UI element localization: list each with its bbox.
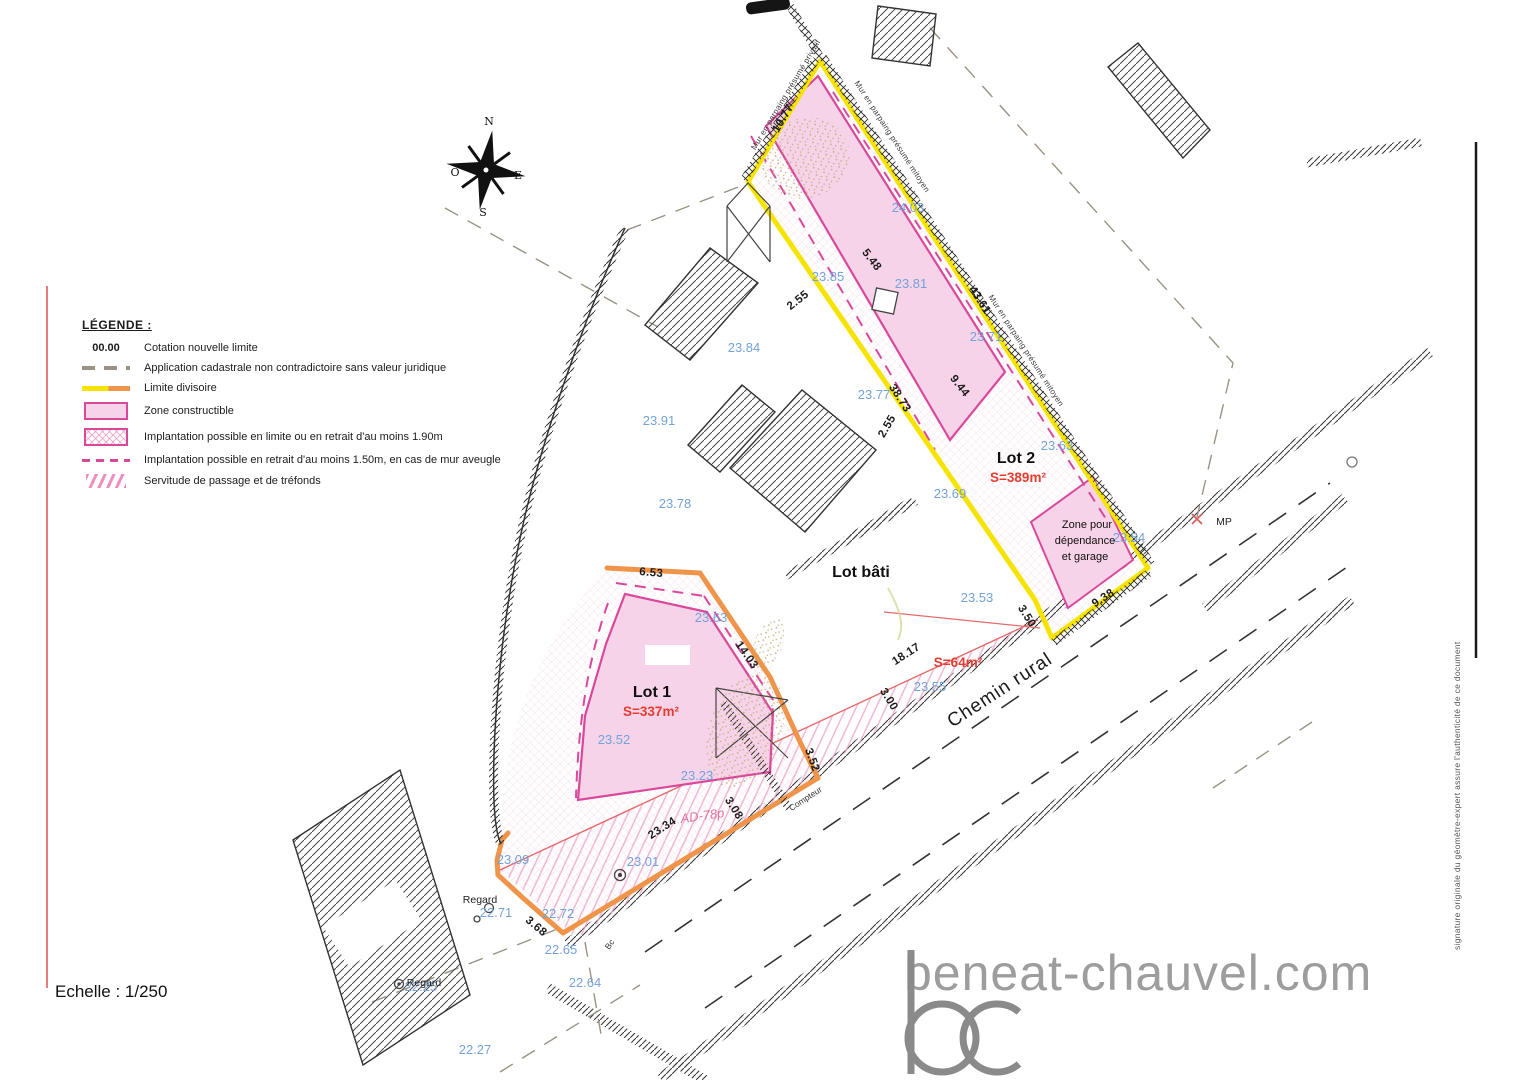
legend-row-servitude: Servitude de passage et de tréfonds [82, 474, 502, 488]
plan-label-mp: MP [1216, 516, 1232, 528]
plan-label-6-53: 6.53 [639, 566, 664, 580]
legend-row-limite: Limite divisoire [82, 382, 502, 394]
plan-svg: N E O S 10.7743.6138.739.445.482.552.556… [0, 0, 1528, 1080]
pink-dashed-line-icon [82, 459, 130, 462]
legend-row-cadastrale: Application cadastrale non contradictoir… [82, 362, 502, 374]
plan-label-22-64: 22.64 [569, 975, 602, 990]
plan-label-lot-b-ti: Lot bâti [832, 564, 890, 581]
legend-row-implantation-retrait: Implantation possible en retrait d'au mo… [82, 454, 502, 466]
plan-label-23-52: 23.52 [598, 732, 631, 747]
plan-label-23-77: 23.77 [858, 387, 891, 402]
plan-label-22-27: 22.27 [459, 1042, 492, 1057]
legend-label: Zone constructible [144, 405, 234, 417]
legend: LÉGENDE : 00.00 Cotation nouvelle limite… [82, 318, 502, 496]
plan-label-23-63: 23.63 [695, 610, 728, 625]
plan-label-2-55: 2.55 [785, 288, 811, 312]
plan-label-23-09: 23.09 [497, 852, 530, 867]
legend-row-implantation-limite: Implantation possible en limite ou en re… [82, 428, 502, 446]
plan-label-s-64m-: S=64m² [934, 655, 983, 670]
pink-crosshatch-icon [84, 428, 128, 446]
pink-rect-icon [84, 402, 128, 420]
compass-south-label: S [479, 206, 487, 219]
pink-hatch-icon [86, 474, 126, 488]
plan-label-2-55: 2.55 [876, 413, 898, 440]
legend-label: Cotation nouvelle limite [144, 342, 258, 354]
plan-label-d-pendance: dépendance [1055, 535, 1116, 547]
building-top-right [1108, 43, 1210, 158]
plan-label-regard: Regard [407, 977, 442, 989]
plan-label-22-71: 22.71 [480, 905, 513, 920]
plan-label-23-78: 23.78 [659, 496, 692, 511]
dashed-gray-line-icon [82, 366, 130, 370]
scale-label: Echelle : 1/250 [55, 982, 167, 1002]
plan-label-bc: Bc [603, 937, 617, 951]
legend-title: LÉGENDE : [82, 318, 502, 332]
legend-row-cotation: 00.00 Cotation nouvelle limite [82, 342, 502, 354]
plan-label-23-53: 23.53 [961, 590, 994, 605]
blank-patch [645, 645, 690, 665]
legend-label: Servitude de passage et de tréfonds [144, 475, 321, 487]
legend-label: Limite divisoire [144, 382, 217, 394]
legend-label: Implantation possible en retrait d'au mo… [144, 454, 501, 466]
plan-label-23-01: 23.01 [627, 854, 660, 869]
bc-logo-monogram [898, 948, 1048, 1076]
plan-label-23-54: 23.54 [1113, 530, 1146, 545]
survey-plan-page: N E O S 10.7743.6138.739.445.482.552.556… [0, 0, 1528, 1080]
plan-label-24-03: 24.03 [892, 200, 925, 215]
vegetation-mark [888, 588, 901, 640]
legend-row-zone: Zone constructible [82, 402, 502, 420]
plan-label-23-55: 23.55 [914, 679, 947, 694]
plan-label-lot-1: Lot 1 [633, 684, 671, 701]
plan-label-23-23: 23.23 [681, 768, 714, 783]
building-top-middle [872, 6, 936, 66]
surveyor-logo: beneat-chauvel.com [898, 948, 1372, 1004]
plan-label-23-69: 23.69 [934, 486, 967, 501]
plan-label-zone-pour: Zone pour [1062, 519, 1112, 531]
legend-label: Implantation possible en limite ou en re… [144, 431, 443, 443]
plan-label-23-84: 23.84 [728, 340, 761, 355]
plan-label-s-337m-: S=337m² [623, 704, 679, 719]
cotation-symbol: 00.00 [92, 342, 120, 354]
plan-label-23-91: 23.91 [643, 413, 676, 428]
yellow-orange-line-icon [82, 386, 130, 391]
plan-label-22-72: 22.72 [542, 906, 575, 921]
compass-north-label: N [484, 115, 494, 128]
plan-label-23-81: 23.81 [895, 276, 928, 291]
scan-artifact-bar [745, 0, 790, 15]
plan-label-22-65: 22.65 [545, 942, 578, 957]
signature-note: signature originale du géomètre-expert a… [1452, 682, 1462, 950]
plan-label-regard: Regard [463, 894, 498, 906]
plan-label-23-71: 23.71 [970, 329, 1003, 344]
plan-label-23-63: 23.63 [1041, 438, 1074, 453]
plan-label-18-17: 18.17 [890, 641, 922, 668]
plan-label-23-85: 23.85 [812, 269, 845, 284]
plan-label-lot-2: Lot 2 [997, 450, 1035, 467]
compass-west-label: O [450, 166, 459, 179]
legend-label: Application cadastrale non contradictoir… [144, 362, 446, 374]
compass-east-label: E [514, 169, 522, 182]
square-marker [872, 288, 898, 314]
plan-label-et-garage: et garage [1062, 551, 1108, 563]
plan-label-s-389m-: S=389m² [990, 470, 1046, 485]
